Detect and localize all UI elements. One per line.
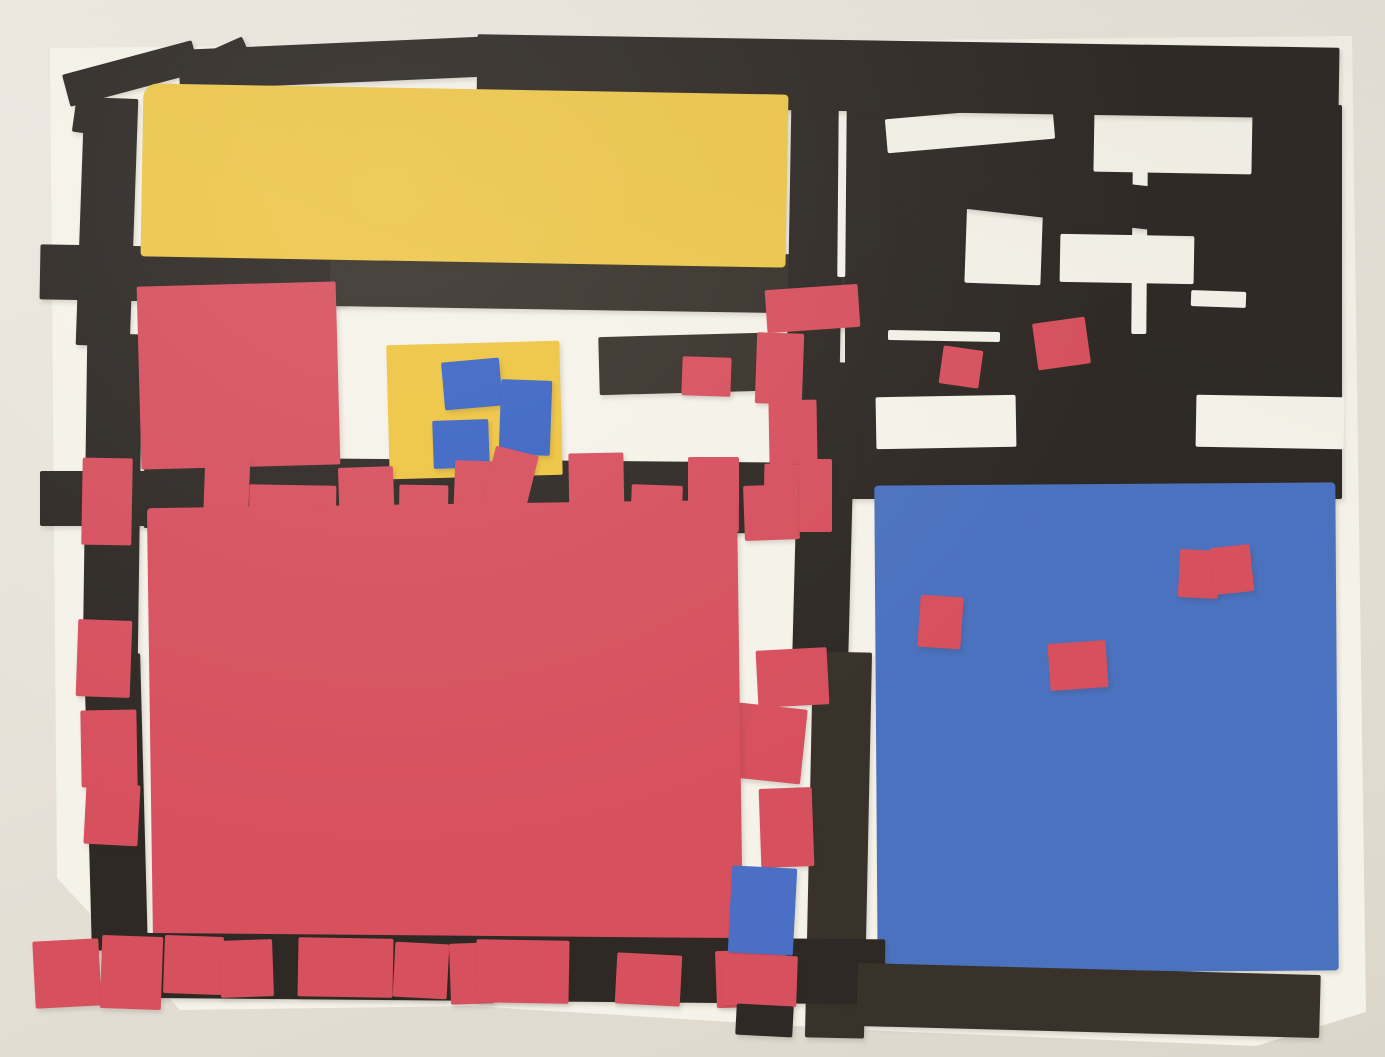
blue-square-large bbox=[874, 482, 1338, 973]
white-gap-6 bbox=[876, 395, 1017, 449]
red-chip-column-2 bbox=[755, 332, 804, 405]
black-strip-left-notch bbox=[72, 99, 110, 136]
red-chip-left-1 bbox=[81, 458, 133, 546]
red-chip-top-right-1 bbox=[939, 345, 984, 388]
red-chip-left-2 bbox=[76, 619, 133, 698]
black-tab-bottom bbox=[735, 1004, 794, 1038]
red-chip-column-3 bbox=[768, 400, 817, 465]
red-chip-bottom-1 bbox=[32, 938, 101, 1008]
red-chip-column-7 bbox=[759, 787, 815, 868]
white-gap-5 bbox=[1196, 395, 1345, 450]
red-chip-left-4 bbox=[83, 783, 140, 847]
red-chip-center-left bbox=[681, 356, 731, 397]
red-chip-column-1 bbox=[765, 284, 861, 333]
blue-chip-mini-2 bbox=[499, 379, 553, 456]
white-gap-4 bbox=[1060, 234, 1195, 284]
red-chip-bottom-9 bbox=[615, 952, 683, 1006]
black-bar-center bbox=[598, 333, 762, 395]
black-strip-bottom-right bbox=[856, 963, 1320, 1038]
red-chip-row-11 bbox=[799, 459, 832, 532]
white-sliver-horizontal bbox=[1191, 290, 1247, 308]
red-chip-bottom-2 bbox=[100, 935, 164, 1010]
collage-photo bbox=[0, 0, 1385, 1057]
red-square-upper-left bbox=[137, 281, 341, 469]
red-chip-bottom-8 bbox=[475, 939, 569, 1004]
red-chip-row-10 bbox=[743, 484, 800, 541]
red-chip-bottom-5 bbox=[297, 937, 393, 998]
red-chip-left-3 bbox=[80, 710, 137, 788]
white-sliver-left bbox=[837, 107, 846, 277]
blue-square-small-bottom bbox=[728, 865, 797, 955]
red-chip-on-blue-4 bbox=[1210, 544, 1255, 595]
yellow-rectangle-large bbox=[141, 83, 789, 267]
red-chip-column-5 bbox=[756, 647, 830, 708]
red-chip-bottom-3 bbox=[163, 935, 224, 995]
red-square-large bbox=[147, 500, 743, 949]
red-chip-bottom-4 bbox=[219, 939, 274, 998]
white-sliver-top bbox=[888, 330, 1000, 342]
red-chip-bottom-6 bbox=[393, 942, 450, 1000]
red-chip-column-6 bbox=[731, 703, 807, 785]
red-chip-top-right-2 bbox=[1032, 317, 1091, 371]
red-chip-on-blue-1 bbox=[917, 595, 964, 650]
black-strip-left-vertical-upper bbox=[76, 97, 139, 347]
red-chip-column-8 bbox=[721, 954, 798, 1008]
blue-chip-mini-1 bbox=[441, 358, 503, 411]
red-chip-on-blue-2 bbox=[1047, 640, 1108, 691]
